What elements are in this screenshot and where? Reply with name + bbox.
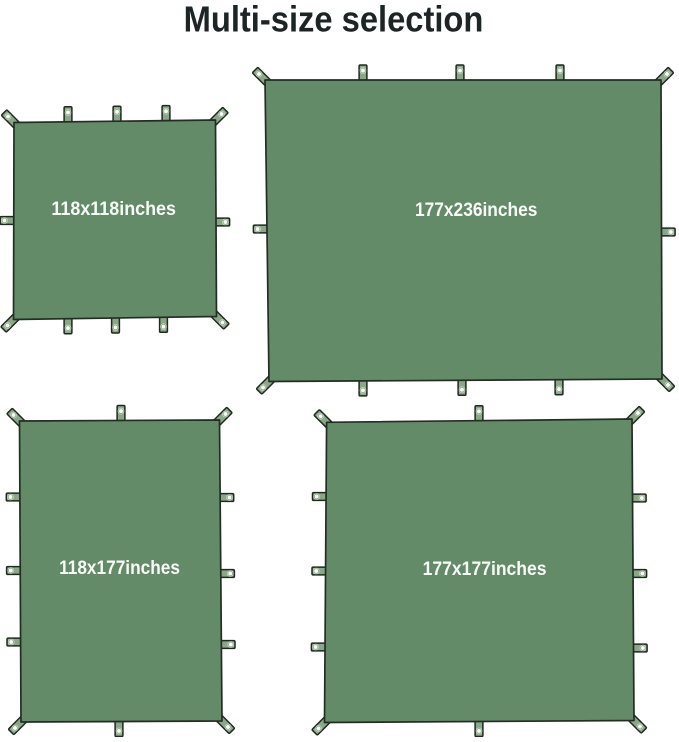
svg-text:118x118inches: 118x118inches: [51, 198, 176, 220]
svg-text:177x236inches: 177x236inches: [415, 198, 537, 220]
svg-text:118x177inches: 118x177inches: [59, 556, 180, 578]
svg-text:177x177inches: 177x177inches: [423, 557, 547, 579]
svg-text:Multi-size selection: Multi-size selection: [184, 0, 484, 40]
